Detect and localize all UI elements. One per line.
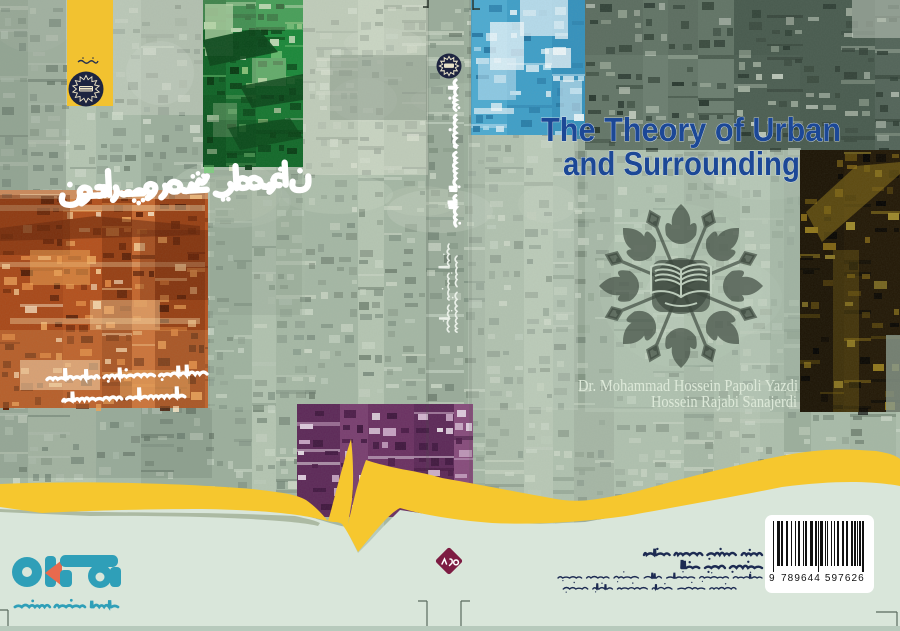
svg-text:9: 9 xyxy=(769,573,775,584)
svg-text:Hossein Rajabi Sanajerdi: Hossein Rajabi Sanajerdi xyxy=(651,392,797,411)
svg-text:and Surrounding: and Surrounding xyxy=(563,145,800,182)
svg-text:The Theory of Urban: The Theory of Urban xyxy=(541,111,841,148)
svg-text:789644 597626: 789644 597626 xyxy=(781,573,865,584)
